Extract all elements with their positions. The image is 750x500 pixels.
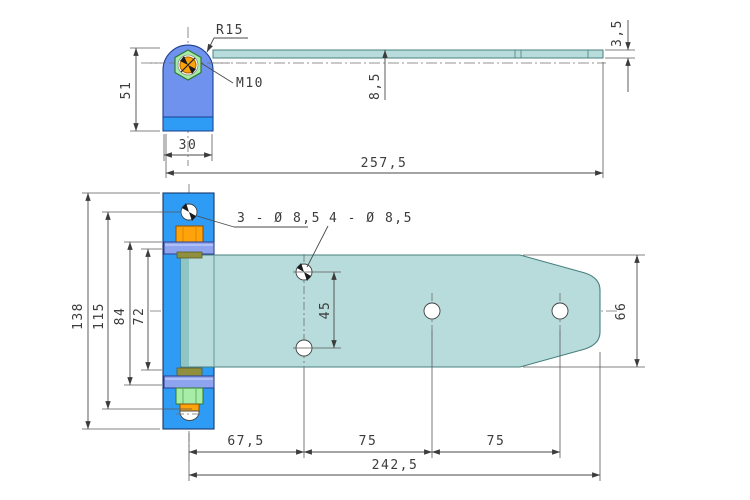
- dim-text: 138: [71, 302, 86, 330]
- dim-text: 75: [359, 434, 378, 449]
- label-plate-holes: 3 - Ø 8,5: [197, 211, 321, 227]
- dim-text: 66: [614, 302, 629, 321]
- bracket-base: [163, 117, 213, 131]
- label-text: 3 - Ø 8,5: [237, 211, 321, 226]
- strap-curl-edge: [181, 256, 189, 366]
- plan-view: 3 - Ø 8,5 4 - Ø 8,5 45 66 72: [71, 184, 645, 481]
- dim-radius: R15: [207, 23, 248, 52]
- label-text: 4 - Ø 8,5: [329, 211, 413, 226]
- dim-text: 257,5: [361, 156, 408, 171]
- pin-collar: [180, 404, 199, 411]
- dim-seg1: 67,5: [189, 434, 304, 452]
- dim-text: 84: [113, 307, 128, 326]
- dim-text: 3,5: [610, 19, 625, 47]
- dim-text: 115: [92, 302, 107, 330]
- dim-knuckle-inner: 72: [132, 249, 162, 370]
- dim-bracket-height: 51: [119, 48, 160, 131]
- dim-total: 242,5: [189, 458, 600, 475]
- strap-plate: [181, 255, 600, 367]
- dim-text: 67,5: [227, 434, 264, 449]
- knuckle-band-bottom: [164, 376, 214, 388]
- radius-label: R15: [216, 23, 244, 38]
- dim-text: 30: [179, 138, 198, 153]
- dim-text: 8,5: [368, 72, 383, 100]
- strap-hole-3: [552, 303, 568, 319]
- strap-hole-2: [424, 303, 440, 319]
- side-view: R15 M10 51 30 8,5: [119, 19, 635, 178]
- dim-text: 75: [487, 434, 506, 449]
- dim-text: 51: [119, 81, 134, 100]
- dim-text: 242,5: [372, 458, 419, 473]
- dim-text: 45: [318, 301, 333, 320]
- hex-nut-green: [176, 388, 203, 404]
- dim-strap-thickness: 3,5: [605, 19, 635, 92]
- hex-nut-orange: [176, 226, 203, 242]
- dim-seg3: 75: [432, 434, 560, 452]
- strap-side-profile: [213, 50, 603, 58]
- washer-bottom: [177, 368, 202, 376]
- thread-label: M10: [236, 76, 264, 91]
- dim-seg2: 75: [304, 434, 432, 452]
- dim-text: 72: [132, 307, 147, 326]
- dim-total-length: 257,5: [166, 62, 603, 178]
- cad-drawing-canvas: R15 M10 51 30 8,5: [0, 0, 750, 500]
- hinge-drawing: R15 M10 51 30 8,5: [0, 0, 750, 500]
- washer-top: [177, 252, 202, 258]
